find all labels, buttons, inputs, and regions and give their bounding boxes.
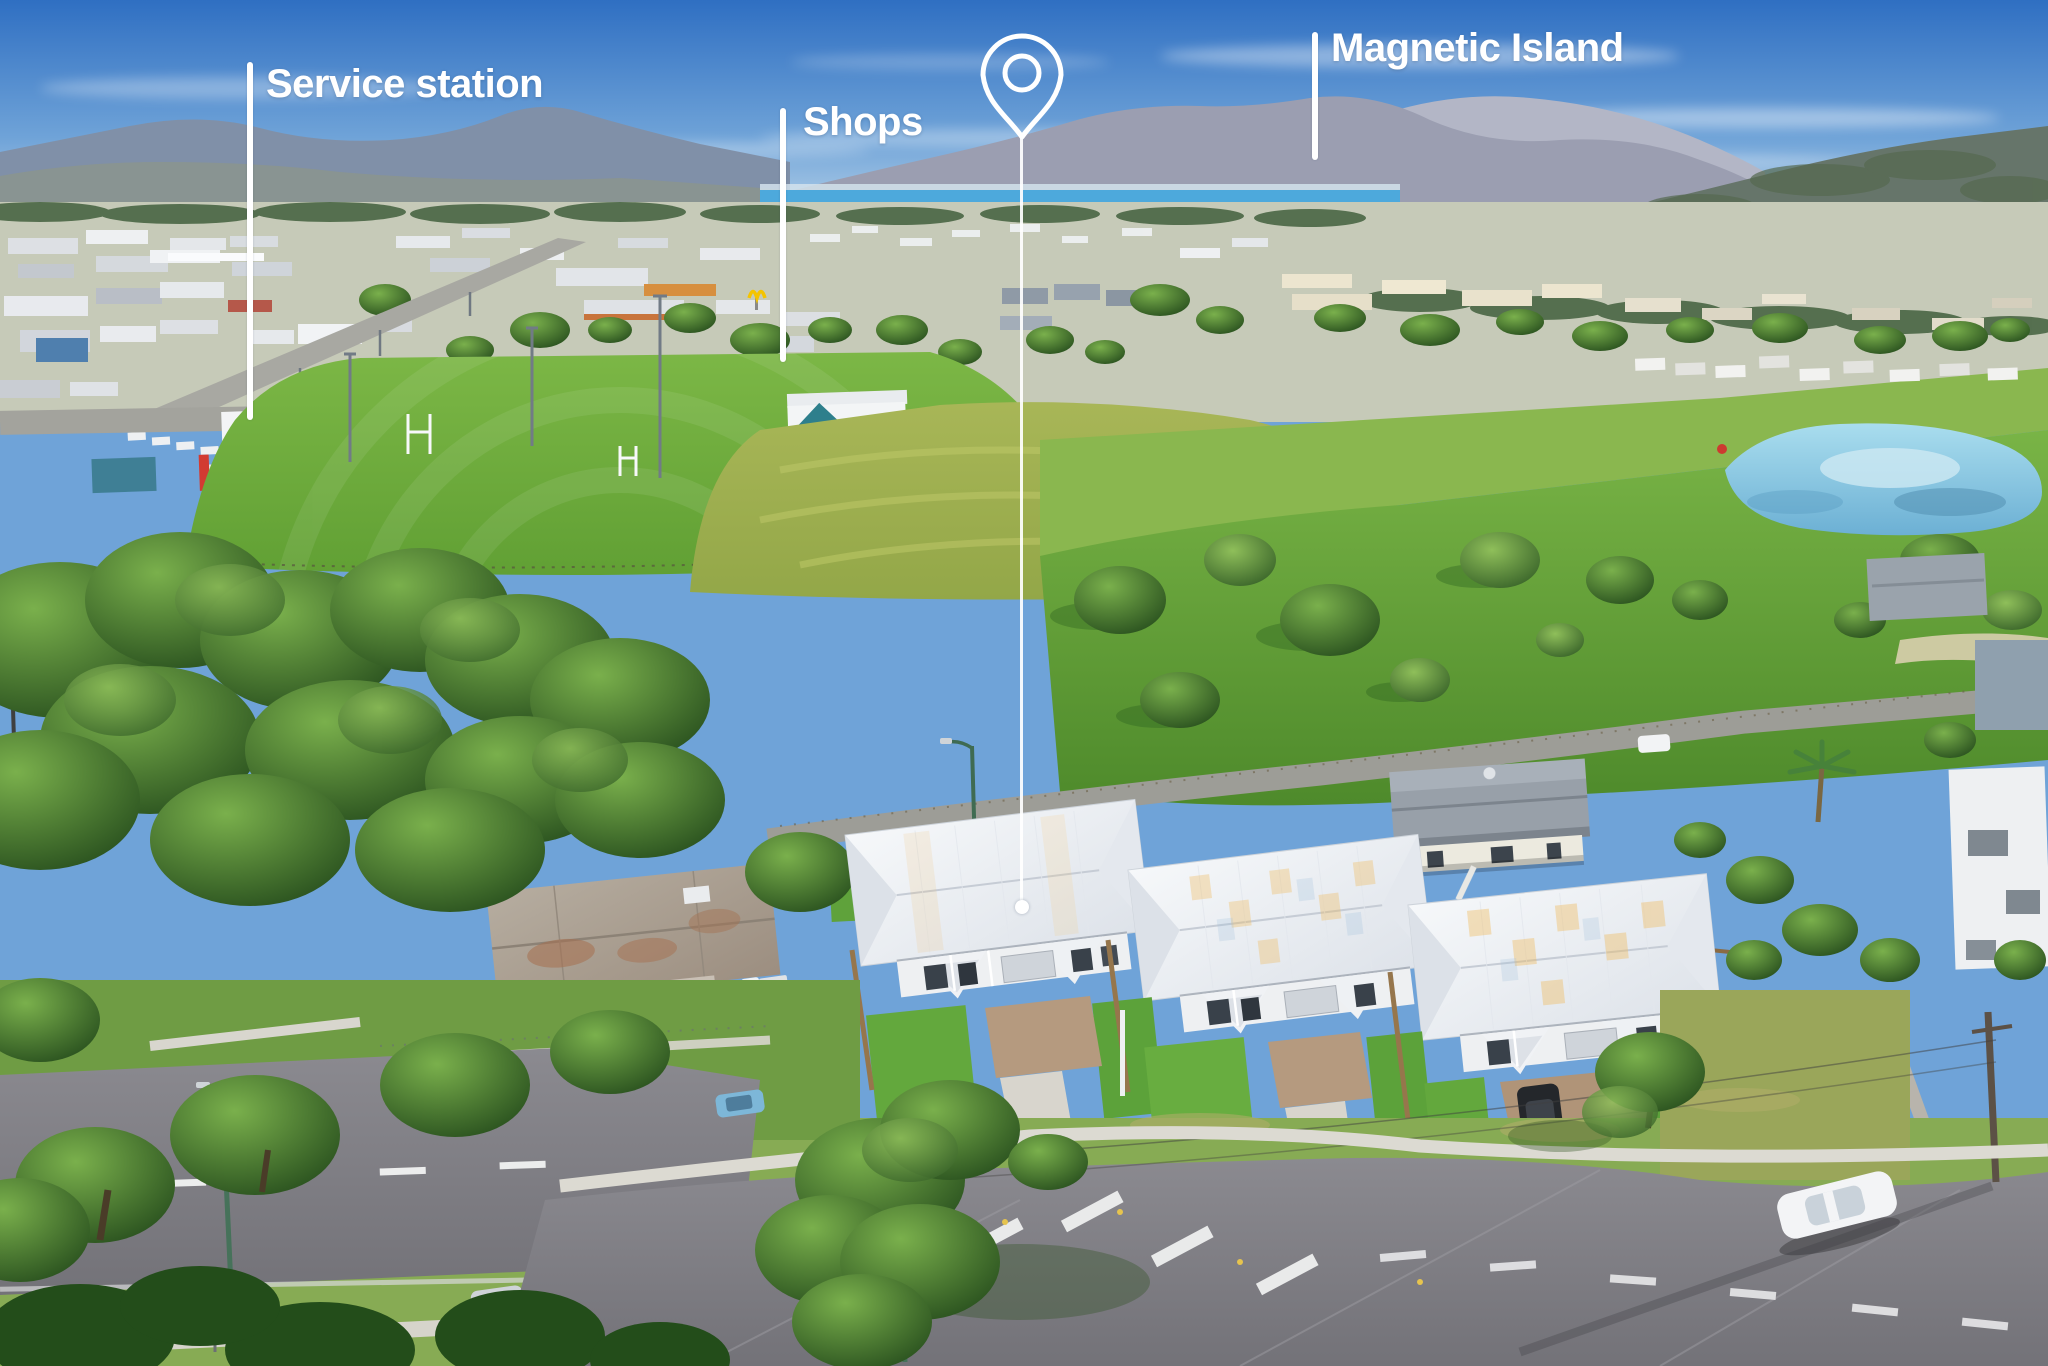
aerial-photo-scene bbox=[0, 0, 2048, 1366]
aerial-photo: Service station Shops Magnetic Island bbox=[0, 0, 2048, 1366]
white-suv bbox=[1637, 734, 1670, 753]
neighbour-palm-tree bbox=[1790, 742, 1854, 822]
duplex-house-1 bbox=[845, 799, 1156, 1009]
